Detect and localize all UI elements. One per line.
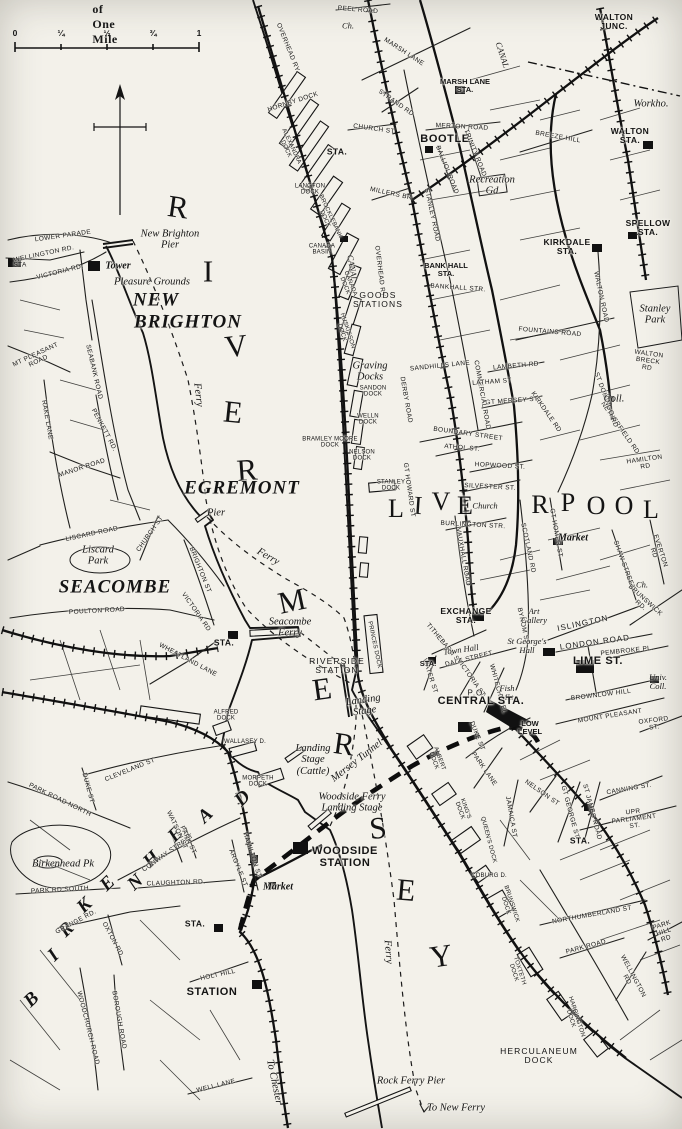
- map-label: PARK HILL RD: [652, 919, 676, 945]
- map-label: HORNBY DOCK: [267, 91, 319, 114]
- map-label: I: [44, 946, 64, 966]
- map-label: SEABANK ROAD: [84, 344, 103, 400]
- map-label: PENKETT RD.: [90, 407, 118, 452]
- map-label: Univ. Coll.: [649, 673, 667, 691]
- map-label: ST JAMES ROAD: [581, 783, 603, 840]
- map-label: ALBERT DOCK: [426, 746, 447, 773]
- map-label: CANADA BASIN: [309, 244, 335, 257]
- map-label: MORPETH DOCK: [242, 776, 273, 789]
- map-label: St George's Hall: [507, 637, 546, 655]
- map-label: Graving Docks: [353, 361, 388, 384]
- map-label: BRIGHTON: [134, 313, 242, 334]
- map-label: HARRINGTON DOCK: [560, 996, 585, 1040]
- map-label: WALLASEY D.: [224, 739, 266, 745]
- map-label: CENTRAL STA.: [438, 696, 525, 708]
- map-label: E: [395, 873, 417, 908]
- map-label: PARK ROAD NORTH: [28, 782, 93, 818]
- map-label: BOUNDARY STREET: [433, 426, 503, 443]
- map-labels-layer: RIVERMERSEYLIVERPOOLBIRKENHEADLOWER PARA…: [0, 0, 682, 1129]
- map-label: VICTORIA RD.: [36, 263, 84, 281]
- map-label: WHEATLAND LANE: [158, 642, 218, 679]
- map-label: DUKE ST: [468, 720, 486, 751]
- map-label: TRINITY ROAD: [462, 128, 487, 177]
- scale-tick-label: 1: [197, 28, 202, 38]
- map-label: BANKHALL STR.: [430, 283, 486, 294]
- map-label: PARK ROAD: [565, 938, 607, 955]
- map-label: ALFRED DOCK: [214, 710, 239, 723]
- map-label: SCOTLAND RD: [519, 522, 536, 573]
- map-label: LISCARD ROAD: [65, 525, 119, 543]
- map-label: STANLEY DOCK: [377, 480, 405, 493]
- map-label: WOODCHURCH ROAD: [75, 990, 100, 1065]
- map-label: RIVERSIDE STATION: [309, 657, 365, 675]
- map-label: Liscard Park: [82, 545, 114, 568]
- map-label: HERCULANEUM DOCK: [500, 1047, 578, 1065]
- map-label: L: [643, 496, 659, 524]
- map-label: MARSH LANE: [383, 36, 426, 67]
- map-label: BOOTLE: [420, 134, 469, 146]
- map-label: PEEL ROAD: [337, 5, 378, 16]
- map-label: DERBY ROAD: [398, 376, 413, 423]
- map-label: WALTON STA.: [611, 127, 649, 145]
- map-label: GT MERSEY ST: [485, 396, 538, 407]
- map-label: VAUXHALL ROAD: [454, 527, 471, 586]
- map-label: HUSKISSON DOCK: [332, 312, 356, 351]
- map-label: SEACOMBE: [59, 578, 172, 599]
- scale-tick-label: ½: [103, 28, 110, 38]
- map-label: I: [203, 254, 213, 287]
- map-label: GOODS STATIONS: [353, 291, 403, 309]
- map-label: To Chester: [264, 1059, 285, 1106]
- map-label: Coll.: [604, 393, 625, 404]
- map-label: CANNING ST.: [606, 782, 652, 797]
- map-label: STANLEY ROAD: [423, 188, 441, 243]
- map-label: EXCHANGE STA.: [440, 607, 491, 625]
- map-label: O: [587, 492, 606, 520]
- map-label: BALLIOL ROAD: [434, 145, 460, 195]
- map-label: E: [457, 492, 473, 520]
- map-label: BRIGHTON ST: [188, 546, 213, 594]
- map-label: O: [615, 492, 634, 520]
- map-label: WELLINGTON RD: [612, 952, 649, 1005]
- map-label: SANDHILLS LANE: [410, 359, 471, 372]
- map-label: V: [432, 488, 451, 516]
- map-label: N: [124, 871, 148, 895]
- map-label: BRAMLEY MOORE DOCK: [302, 437, 358, 450]
- map-label: STA.: [570, 836, 590, 845]
- map-label: QUEEN'S DOCK: [479, 816, 498, 864]
- map-label: MOUNT PLEASANT: [577, 707, 642, 724]
- map-label: V: [223, 328, 249, 364]
- map-label: Landing Stage: [345, 692, 383, 719]
- map-label: HAMILTON RD: [626, 453, 665, 472]
- map-label: BROWNLOW HILL: [571, 688, 632, 702]
- map-label: Market: [558, 534, 588, 545]
- map-label: LIME ST.: [573, 656, 623, 668]
- scale-tick-label: ¾: [149, 28, 156, 38]
- map-label: Ferry: [191, 382, 205, 407]
- map-label: LATHAM ST: [472, 377, 512, 387]
- map-label: WALTON BRECK RD: [630, 348, 667, 374]
- map-label: WOODSIDE STATION: [312, 846, 378, 870]
- map-label: COMMERCIAL ROAD: [472, 360, 491, 431]
- map-label: Woodside Ferry Landing Stage: [319, 792, 386, 815]
- map-label: CHURCH ST: [135, 515, 165, 553]
- map-label: BROCKLEBANK DOCK: [311, 194, 343, 242]
- map-label: STA.: [327, 147, 347, 156]
- map-label: E: [222, 394, 244, 429]
- map-label: HAMILTON ST: [241, 831, 262, 878]
- map-label: Recreation Gd: [469, 175, 515, 198]
- map-label: NELSON ST: [523, 779, 560, 808]
- map-label: To New Ferry: [427, 1102, 485, 1113]
- map-label: Y: [428, 938, 455, 974]
- map-label: OXFORD ST.: [638, 715, 670, 733]
- map-label: STATION: [187, 987, 238, 999]
- map-label: Ferry: [381, 940, 394, 965]
- map-label: Stanley Park: [640, 304, 671, 327]
- map-label: HOPWOOD ST.: [475, 461, 526, 471]
- map-label: MT PLEASANT ROAD: [12, 341, 63, 375]
- map-label: CLAUGHTON RD.: [146, 878, 205, 887]
- scale-title: Scale of One Mile: [92, 0, 121, 47]
- map-label: KING'S DOCK: [452, 798, 471, 822]
- map-label: B: [20, 988, 43, 1012]
- map-label: R: [531, 491, 548, 519]
- map-label: Workho.: [634, 98, 669, 109]
- map-label: KIRKDALE STA.: [543, 238, 590, 256]
- map-label: PRINCES DOCK: [366, 621, 382, 669]
- map-label: BREEZE HILL: [535, 130, 581, 145]
- map-label: WALTON ROAD: [592, 271, 610, 323]
- map-label: FOUNTAINS ROAD: [518, 326, 582, 339]
- map-label: M: [275, 582, 309, 620]
- scale-tick-label: ¼: [57, 28, 64, 38]
- map-label: GT GEORGE ST: [560, 785, 581, 839]
- map-label: CANAL: [494, 41, 511, 69]
- map-label: CLEVELAND ST: [104, 757, 156, 784]
- map-label: BRUNSWICK DOCK: [496, 885, 520, 926]
- map-label: MARSH LANE STA.: [440, 78, 490, 94]
- map-label: LOWER PARADE: [34, 229, 91, 244]
- map-label: STA: [13, 261, 26, 268]
- map-label: DUKE ST: [81, 772, 96, 804]
- map-label: RAKE LANE: [40, 400, 54, 441]
- map-label: E: [310, 671, 333, 707]
- map-label: New Brighton Pier: [141, 229, 200, 252]
- map-label: MANOR ROAD: [58, 457, 107, 479]
- map-label: OVERHEAD RY.: [275, 22, 301, 74]
- map-label: NEW: [133, 291, 179, 312]
- map-label: E: [96, 872, 119, 896]
- map-label: CHURCH ST: [353, 123, 395, 136]
- map-label: LAMBETH RD: [493, 361, 539, 372]
- map-label: OXTON RD.: [101, 921, 126, 959]
- map-label: Birkenhead Pk: [32, 858, 94, 869]
- map-label: POULTON ROAD: [69, 606, 126, 616]
- map-label: Church: [472, 501, 497, 510]
- map-label: R: [165, 189, 190, 225]
- map-label: EVERTON RD: [645, 534, 669, 571]
- map-label: Pleasure Grounds: [114, 276, 190, 287]
- map-label: ATHOL ST.: [444, 443, 480, 453]
- map-label: ISLINGTON: [557, 614, 610, 633]
- map-label: Pier: [207, 507, 225, 518]
- map-label: WELLN DOCK: [357, 414, 379, 427]
- map-label: UPR PARLIAMENT ST.: [609, 806, 659, 833]
- map-label: TOXTETH DOCK: [505, 956, 526, 988]
- map-label: S: [368, 811, 388, 846]
- map-label: JAMAICA ST: [504, 796, 518, 839]
- map-label: NELSON DOCK: [349, 450, 375, 463]
- map-label: Art Gallery: [521, 607, 547, 625]
- map-label: A: [194, 804, 217, 828]
- map-label: BURLINGTON STR.: [440, 520, 505, 530]
- map-label: STRAND RD: [377, 88, 415, 118]
- map-label: LOW LEVEL: [518, 720, 542, 736]
- map-label: STA.: [420, 660, 437, 668]
- map-canvas: RIVERMERSEYLIVERPOOLBIRKENHEADLOWER PARA…: [0, 0, 682, 1129]
- map-label: Rock Ferry Pier: [377, 1075, 445, 1086]
- map-label: P: [561, 489, 575, 517]
- map-label: L: [388, 495, 404, 523]
- map-label: HOLT HILL: [200, 968, 237, 982]
- map-label: BOROUGH ROAD: [110, 990, 127, 1049]
- map-label: ARGYLE ST: [227, 848, 249, 888]
- map-label: WELL LANE: [196, 1078, 236, 1094]
- map-label: BANK HALL STA.: [424, 262, 468, 278]
- map-label: PARK LANE: [470, 751, 498, 787]
- map-label: EGREMONT: [184, 479, 300, 500]
- map-label: D: [231, 787, 255, 811]
- map-label: SPELLOW STA.: [626, 219, 671, 237]
- map-label: ALEXANDRA DOCK: [274, 128, 302, 168]
- map-label: COBURG D.: [471, 873, 507, 879]
- map-label: STA.: [185, 919, 205, 928]
- map-label: Ferry: [255, 546, 281, 568]
- map-label: Landing Stage (Cattle): [295, 743, 330, 777]
- map-label: STA.: [214, 638, 234, 647]
- scale-tick-label: 0: [13, 28, 18, 38]
- map-label: Tower: [105, 262, 130, 273]
- map-label: WALTON JUNC.: [595, 13, 633, 31]
- map-label: Ch.: [342, 21, 354, 30]
- map-label: Seacombe Ferry: [269, 617, 312, 640]
- map-label: SHAW STREET: [612, 540, 636, 590]
- map-label: Market: [263, 883, 293, 894]
- map-label: MILLERS BR.: [369, 186, 414, 202]
- map-label: NORTHUMBERLAND ST: [552, 905, 633, 926]
- map-label: SANDON DOCK: [360, 386, 387, 399]
- map-label: VICTORIA RD: [180, 591, 212, 633]
- map-label: PEMBROKE PL.: [600, 645, 654, 658]
